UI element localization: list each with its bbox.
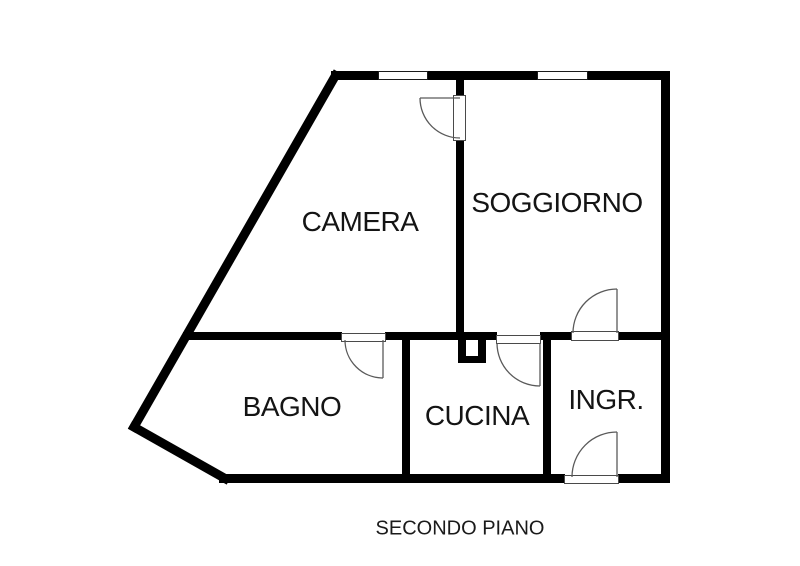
door-cucina-panel	[497, 336, 541, 344]
room-label-camera: CAMERA	[302, 206, 419, 238]
wall-bottom-exterior-right	[618, 474, 670, 483]
window-top-left	[379, 72, 428, 80]
wall-camera-soggiorno-lower	[456, 140, 464, 340]
wall-bottom-exterior-left	[219, 474, 565, 483]
floor-caption: SECONDO PIANO	[376, 518, 545, 541]
wall-middle-2	[385, 332, 497, 340]
wall-middle-1	[183, 332, 342, 340]
door-bagno-arc	[345, 340, 383, 378]
wall-middle-4	[618, 332, 670, 340]
door-camera-panel	[454, 96, 466, 141]
door-cucina-arc	[497, 343, 540, 386]
wall-bagno-cucina	[402, 332, 410, 483]
window-top-right	[538, 72, 588, 80]
wall-cucina-ingresso	[543, 332, 551, 483]
room-label-cucina: CUCINA	[425, 400, 529, 432]
room-label-bagno: BAGNO	[243, 391, 342, 423]
wall-left-slant-upper	[134, 76, 336, 428]
room-label-soggiorno: SOGGIORNO	[471, 187, 642, 219]
floorplan: CAMERA SOGGIORNO BAGNO CUCINA INGR. SECO…	[0, 0, 800, 566]
door-soggiorno-ingresso-panel	[572, 332, 619, 341]
floorplan-drawing	[0, 0, 800, 566]
door-soggiorno-ingresso-arc	[573, 289, 617, 333]
shaft-right	[478, 340, 486, 363]
door-entrance-arc	[572, 432, 617, 477]
room-label-ingresso: INGR.	[568, 384, 643, 416]
wall-right-exterior	[661, 71, 670, 483]
door-bagno-panel	[342, 334, 386, 342]
wall-left-slant-lower	[134, 427, 225, 479]
wall-camera-soggiorno-upper	[456, 71, 464, 96]
